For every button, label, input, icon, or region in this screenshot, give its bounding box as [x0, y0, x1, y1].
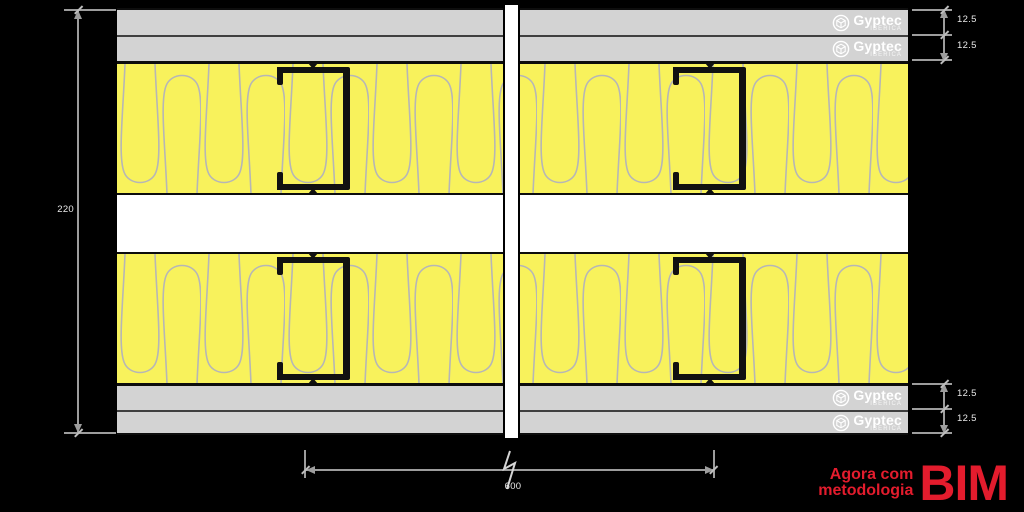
- extension-line: [64, 432, 116, 434]
- wall-section-diagram: Gyptec IBÉRICA Gyptec IBÉRICA: [0, 0, 1024, 512]
- metal-stud: [277, 257, 350, 380]
- dimension-label-board: 12.5: [957, 14, 977, 25]
- gyptec-cube-icon: [832, 389, 850, 407]
- metal-stud: [673, 67, 746, 190]
- screw-marker-icon: [705, 63, 715, 69]
- metal-stud: [277, 67, 350, 190]
- brand-subtitle: IBÉRICA: [870, 53, 902, 58]
- promo-line2: metodologia: [818, 483, 913, 499]
- promo-bim: BIM: [919, 460, 1008, 506]
- dimension-label-board: 12.5: [957, 413, 977, 424]
- dimension-label-board: 12.5: [957, 388, 977, 399]
- screw-marker-icon: [308, 253, 318, 259]
- gyptec-cube-icon: [832, 414, 850, 432]
- drawing-break: [503, 5, 520, 438]
- dimension-label-spacing: 600: [488, 481, 538, 492]
- gyptec-logo: Gyptec IBÉRICA: [832, 14, 902, 32]
- dimension-label-total: 220: [42, 204, 74, 215]
- screw-marker-icon: [308, 63, 318, 69]
- metal-stud: [673, 257, 746, 380]
- extension-line: [64, 9, 116, 11]
- brand-subtitle: IBÉRICA: [870, 402, 902, 407]
- dimension-label-board: 12.5: [957, 40, 977, 51]
- gyptec-logo: Gyptec IBÉRICA: [832, 414, 902, 432]
- screw-marker-icon: [705, 253, 715, 259]
- dimension-line-total: [77, 10, 79, 433]
- brand-subtitle: IBÉRICA: [870, 27, 902, 32]
- gyptec-cube-icon: [832, 40, 850, 58]
- wall-assembly: Gyptec IBÉRICA Gyptec IBÉRICA: [117, 8, 908, 435]
- brand-subtitle: IBÉRICA: [870, 427, 902, 432]
- gyptec-logo: Gyptec IBÉRICA: [832, 40, 902, 58]
- promo-banner: Agora com metodologia BIM: [818, 460, 1008, 506]
- promo-line1: Agora com: [830, 467, 914, 483]
- gyptec-logo: Gyptec IBÉRICA: [832, 389, 902, 407]
- gyptec-cube-icon: [832, 14, 850, 32]
